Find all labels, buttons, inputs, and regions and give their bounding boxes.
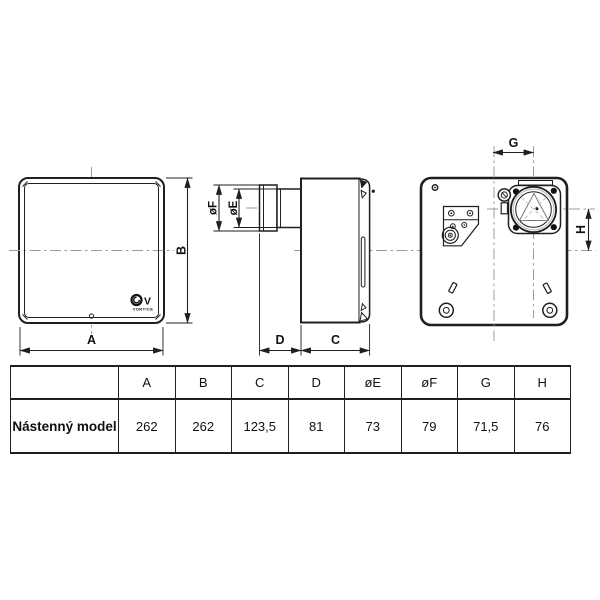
housing-screw-dot: [434, 187, 436, 189]
bracket-hole-dot: [450, 212, 452, 214]
dim-label-oF: øF: [208, 201, 220, 215]
table-header-cell: øF: [401, 366, 458, 399]
table-header-cell: B: [175, 366, 232, 399]
dim-label-D: D: [275, 333, 284, 347]
dimension-C: C: [301, 324, 370, 356]
bracket-hole-dot: [452, 226, 454, 228]
dim-label-A: A: [87, 333, 96, 347]
table-header-cell: C: [232, 366, 289, 399]
dimensions-table: A B C D øE øF G H Nástenný model 262 262…: [10, 365, 571, 454]
hub-dot: [536, 207, 539, 210]
table-header-cell: øE: [345, 366, 402, 399]
dimensional-drawing-page: V VORTICE A B: [0, 0, 600, 600]
dimension-G: G: [493, 136, 534, 153]
bracket-hole-dot: [469, 212, 471, 214]
duct-flange: [509, 186, 561, 234]
top-tab: [519, 181, 553, 186]
table-cell: 76: [514, 399, 571, 453]
table-header-row: A B C D øE øF G H: [11, 366, 571, 399]
table-cell: 123,5: [232, 399, 289, 453]
technical-drawing: V VORTICE A B: [0, 0, 600, 600]
gland-body: [501, 203, 507, 214]
dim-label-H: H: [574, 225, 588, 234]
table-cell: 73: [345, 399, 402, 453]
flange-screw: [551, 188, 557, 194]
table-row: Nástenný model 262 262 123,5 81 73 79 71…: [11, 399, 571, 453]
front-view: V VORTICE: [9, 167, 174, 334]
panel-screw-dot: [372, 190, 375, 193]
table-header-cell: G: [458, 366, 515, 399]
table-cell: 262: [175, 399, 232, 453]
bracket-hole-dot: [464, 224, 466, 226]
dim-label-C: C: [331, 333, 340, 347]
dimension-B: B: [166, 178, 193, 323]
table-cell: 81: [288, 399, 345, 453]
back-view: [421, 146, 595, 341]
table-cell: 71,5: [458, 399, 515, 453]
dimension-H: H: [574, 209, 589, 251]
table-header-cell: H: [514, 366, 571, 399]
dimension-D: D: [260, 234, 302, 356]
fan-body: [301, 179, 360, 323]
table-header-cell: A: [119, 366, 176, 399]
dim-label-G: G: [509, 136, 519, 150]
logo-brand-text: VORTICE: [133, 307, 154, 312]
dim-label-B: B: [175, 246, 189, 255]
duct-collar: [260, 185, 278, 231]
flange-screw: [551, 224, 557, 230]
table-cell: 79: [401, 399, 458, 453]
table-header-cell: [11, 366, 119, 399]
table-cell: 262: [119, 399, 176, 453]
table-header-cell: D: [288, 366, 345, 399]
grommet-dot: [450, 235, 452, 237]
model-name-cell: Nástenný model: [11, 399, 119, 453]
dim-label-oE: øE: [228, 200, 240, 215]
